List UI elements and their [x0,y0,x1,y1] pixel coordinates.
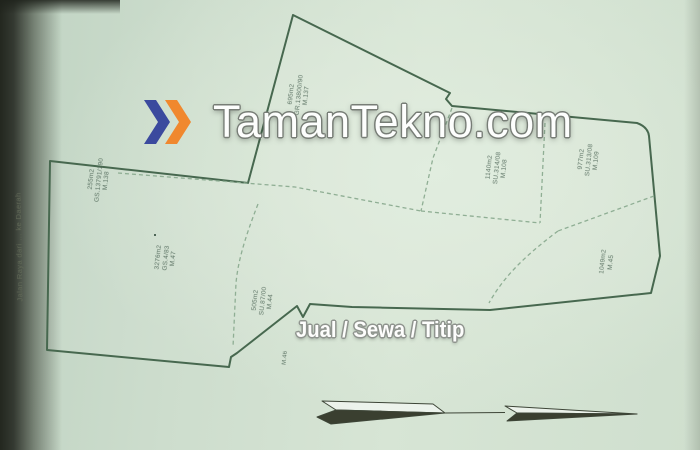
plot-label-m46: M.46 [282,351,291,366]
road-label: Jalan Raya dari … ke Daerah [14,192,25,301]
plot-map-drawing [0,0,700,450]
plot-label-m138: M.138 GS.13791/190 255m2 [85,157,112,203]
plot-label-m109: M.109 SU.313/08 977m2 [576,143,602,178]
parcel-boundary [47,15,660,367]
plot-label-m47: M.47 GS.4/83 3276m2 [153,244,178,271]
watermark-logo: TamanTekno.com [144,98,573,145]
plot-label-m44: M.44 SU.87/00 505m2 [250,286,275,317]
plot-id: M.46 [282,351,291,366]
plot-label-m108: M.108 SU.314/08 1140m2 [484,151,510,186]
brand-chevron-icon [144,100,200,144]
north-arrow-icon [317,401,637,424]
plot-id: M.47 [169,251,178,267]
brand-name: TamanTekno.com [213,98,573,145]
plot-id: M.44 [266,294,275,310]
scanned-plot-map: M.137 GR.13800/90 695m2 M.138 GS.13791/1… [0,0,700,450]
watermark-tagline: Jual / Sewa / Titip [296,317,464,343]
plot-label-m45: M.45 1049m2 [598,249,616,275]
survey-point-marker [154,234,156,236]
road-label-text: Jalan Raya dari … ke Daerah [14,192,25,301]
plot-id: M.45 [606,254,615,270]
